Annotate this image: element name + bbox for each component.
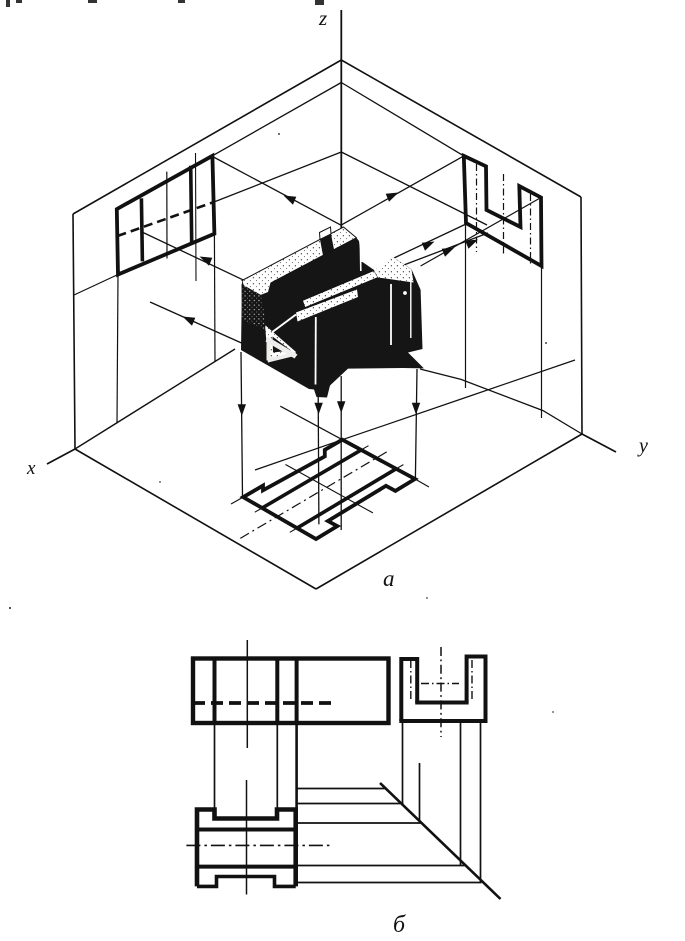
svg-text:x: x [26,458,36,479]
svg-text:z: z [318,6,327,30]
svg-text:a: a [383,566,395,591]
svg-text:y: y [637,435,648,457]
svg-text:б: б [393,912,406,938]
